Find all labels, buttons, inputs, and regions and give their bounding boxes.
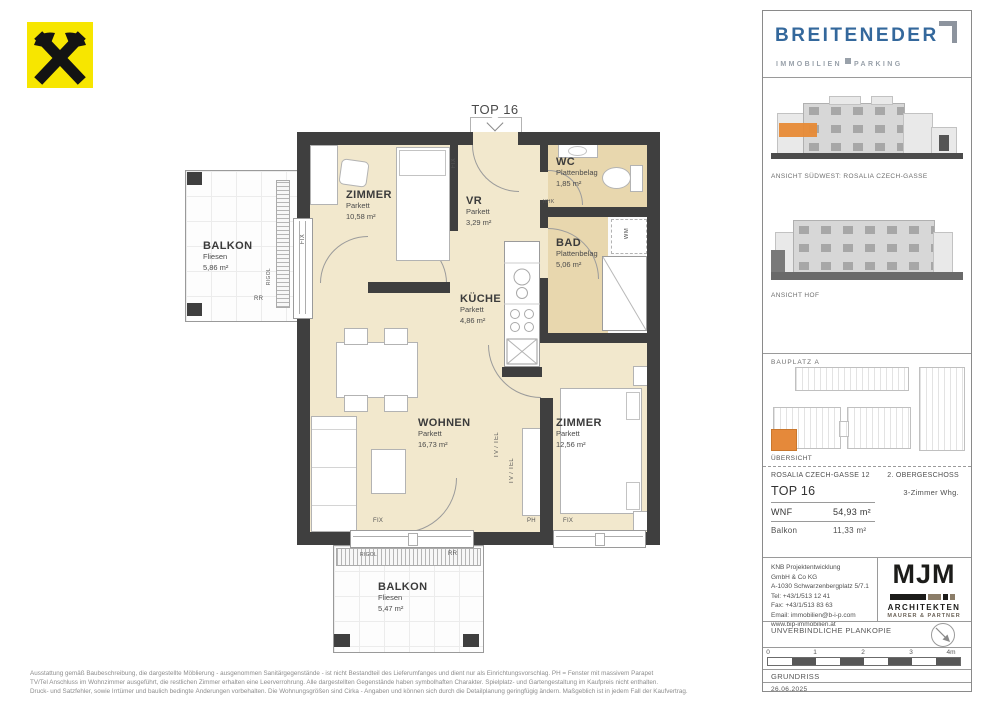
wall (540, 207, 647, 217)
room-name: BALKON (203, 241, 252, 251)
entrance-floor (473, 132, 518, 145)
divider (763, 621, 971, 622)
elevation-southwest: ANSICHT SÜDWEST: ROSALIA CZECH-GASSE (771, 91, 963, 183)
fix-label: FIX (563, 518, 573, 525)
room-name: WOHNEN (418, 418, 471, 428)
wall (540, 398, 553, 532)
square-separator-icon (845, 58, 851, 64)
brand-name: BREITENEDER (775, 25, 939, 47)
underline (771, 502, 875, 503)
room-floor: Parkett (556, 429, 602, 439)
wall (540, 145, 548, 172)
unit-number: TOP 16 (771, 484, 815, 498)
wm-label: WM (624, 228, 631, 239)
ph-label: PH (527, 518, 536, 525)
chair (384, 328, 408, 345)
room-label-wohnen: WOHNEN Parkett 16,73 m² (418, 418, 471, 450)
room-label-kueche: KÜCHE Parkett 4,86 m² (460, 294, 501, 326)
building-wing (903, 113, 933, 155)
chair (338, 158, 369, 188)
annex-arch (939, 135, 949, 151)
architect-sub: MAURER & PARTNER (878, 613, 970, 619)
wall (540, 217, 548, 228)
highlighted-unit (779, 123, 817, 137)
underline (771, 521, 875, 522)
wall (518, 132, 660, 145)
project-floor: 2. OBERGESCHOSS (863, 472, 959, 479)
pillar (463, 634, 479, 647)
basin-bowl (568, 146, 587, 156)
room-name: BAD (556, 238, 598, 248)
ground-line (771, 153, 963, 159)
pillow (399, 150, 446, 176)
scale-tick: 2 (857, 649, 869, 656)
site-building (795, 367, 909, 391)
coffee-table (371, 449, 406, 494)
room-area: 5,86 m² (203, 263, 252, 273)
wall (502, 367, 542, 377)
shower (602, 256, 647, 331)
developer-line: GmbH & Co KG (771, 573, 869, 583)
site-plan-label: BAUPLATZ A (771, 359, 820, 366)
highlighted-unit (771, 429, 797, 451)
roof-structure (829, 96, 861, 105)
toilet-cistern (630, 165, 643, 192)
plan-date: 26.06.2025 (771, 686, 808, 693)
scale-tick: 0 (763, 649, 773, 656)
room-area: 3,29 m² (466, 218, 491, 228)
room-area: 10,58 m² (346, 212, 392, 222)
wall (470, 532, 556, 545)
developer-line: A-1030 Schwarzenbergplatz 5/7.1 (771, 582, 869, 592)
wall (368, 282, 450, 293)
wall (297, 313, 310, 545)
fix-label: FIX (373, 518, 383, 525)
elevation-hof: ANSICHT HOF (771, 206, 963, 302)
wall (297, 532, 353, 545)
site-plan: BAUPLATZ A (767, 355, 967, 455)
nightstand (633, 511, 648, 531)
room-floor: Parkett (346, 201, 392, 211)
room-area: 4,86 m² (460, 316, 501, 326)
desk (310, 145, 338, 205)
drainage-strip (336, 548, 481, 566)
site-building (847, 407, 911, 449)
plan-sheet: TOP 16 RIGOL RR RIGOL RR (0, 0, 1000, 706)
room-label-zimmer2: ZIMMER Parkett 12,56 m² (556, 418, 602, 450)
window (553, 530, 646, 548)
tv-board (522, 428, 541, 516)
ground-line (771, 272, 963, 280)
room-area: 5,06 m² (556, 260, 598, 270)
nightstand (633, 366, 648, 386)
chair (344, 328, 368, 345)
divider (763, 353, 971, 354)
elevation-caption: ANSICHT HOF (771, 292, 819, 299)
project-address: ROSALIA CZECH-GASSE 12 (771, 472, 870, 479)
wnf-label: WNF (771, 507, 792, 517)
unit-type: 3-Zimmer Whg. (859, 488, 959, 497)
rr-label: RR (448, 551, 457, 558)
corner-bracket-icon (939, 21, 957, 43)
roof-structure (871, 96, 893, 105)
rigol-label: RIGOL (360, 552, 377, 559)
sofa (311, 416, 357, 532)
disclaimer-line: Druck- und Satzfehler, sowie Irrtümer un… (30, 688, 725, 697)
pillow (626, 482, 640, 510)
architect-logo: MJM ARCHITEKTEN MAURER & PARTNER (877, 557, 970, 621)
building-wing (933, 232, 953, 274)
brand-sub-right: PARKING (854, 61, 903, 68)
room-floor: Plattenbelag (556, 168, 598, 178)
developer-line: Tel: +43/1/513 12 41 (771, 592, 869, 602)
room-label-balkon-sued: BALKON Fliesen 5,47 m² (378, 582, 427, 614)
drawing-type: GRUNDRISS (771, 672, 820, 681)
divider (763, 669, 971, 670)
building-facade (793, 220, 935, 274)
scale-tick: 1 (809, 649, 821, 656)
architect-name: ARCHITEKTEN (878, 603, 970, 612)
room-name: WC (556, 157, 598, 167)
plan-copy-note: UNVERBINDLICHE PLANKOPIE (771, 626, 891, 635)
architect-bar-icon (890, 594, 955, 600)
rr-label: RR (254, 296, 263, 303)
site-connector (839, 421, 849, 437)
divider (763, 682, 971, 683)
room-floor: Fliesen (203, 252, 252, 262)
divider (763, 466, 971, 467)
drainage-strip (276, 180, 290, 308)
room-label-zimmer1: ZIMMER Parkett 10,58 m² (346, 190, 392, 222)
brand-logo: BREITENEDER IMMOBILIENPARKING (763, 11, 969, 77)
room-label-balkon-west: BALKON Fliesen 5,86 m² (203, 241, 252, 273)
room-label-vr: VR Parkett 3,29 m² (466, 196, 491, 228)
wall (297, 132, 473, 145)
sidebar: BREITENEDER IMMOBILIENPARKING ANSICHT SÜ… (762, 10, 972, 692)
room-floor: Parkett (418, 429, 471, 439)
pillow (626, 392, 640, 420)
room-name: ZIMMER (346, 190, 392, 200)
room-area: 1,85 m² (556, 179, 598, 189)
room-floor: Plattenbelag (556, 249, 598, 259)
fix-label: FIX (300, 234, 307, 244)
window (350, 530, 474, 548)
dining-table (336, 342, 418, 398)
room-area: 16,73 m² (418, 440, 471, 450)
room-floor: Parkett (460, 305, 501, 315)
room-floor: Fliesen (378, 593, 427, 603)
floor-plan: TOP 16 RIGOL RR RIGOL RR (0, 0, 760, 706)
wall (540, 278, 548, 333)
toilet (602, 167, 631, 189)
room-area: 12,56 m² (556, 440, 602, 450)
brand-sub-left: IMMOBILIEN (776, 61, 842, 68)
room-area: 5,47 m² (378, 604, 427, 614)
elevation-caption: ANSICHT SÜDWEST: ROSALIA CZECH-GASSE (771, 173, 928, 180)
wall (540, 333, 660, 343)
site-plan-bottom-label: ÜBERSICHT (771, 455, 812, 462)
scale-bar (767, 657, 961, 666)
scale-tick: 3 (905, 649, 917, 656)
building-facade (803, 103, 905, 155)
side-structure (771, 250, 785, 272)
north-arrow-icon (931, 623, 955, 647)
wnf-value: 54,93 m² (833, 507, 871, 517)
room-name: BALKON (378, 582, 427, 592)
room-name: ZIMMER (556, 418, 602, 428)
developer-line: KNB Projektentwicklung (771, 563, 869, 573)
disclaimer: Ausstattung gemäß Baubeschreibung, die d… (30, 670, 725, 696)
developer-line: Email: immobilien@b-i-p.com (771, 611, 869, 621)
disclaimer-line: TV/Tel Anschluss im Wohnzimmer ausgeführ… (30, 679, 725, 688)
pillar (334, 634, 350, 647)
tv-tel-label: TV / TEL (509, 458, 516, 484)
room-label-wc: WC Plattenbelag 1,85 m² (556, 157, 598, 189)
scale-tick: 4m (941, 649, 961, 656)
room-floor: Parkett (466, 207, 491, 217)
room-name: KÜCHE (460, 294, 501, 304)
developer-block: KNB Projektentwicklung GmbH & Co KG A-10… (763, 557, 877, 621)
tv-tel-label: TV / TEL (494, 432, 501, 458)
kitchen-unit (504, 241, 540, 367)
balkon-value: 11,33 m² (833, 526, 866, 535)
architect-monogram: MJM (878, 559, 970, 590)
site-building (919, 367, 965, 451)
rigol-label: RIGOL (266, 268, 273, 285)
pillar (187, 172, 202, 185)
room-name: VR (466, 196, 491, 206)
divider (763, 77, 971, 78)
wall (297, 145, 310, 222)
room-label-bad: BAD Plattenbelag 5,06 m² (556, 238, 598, 270)
fix-label: FIX (451, 158, 458, 168)
balkon-label: Balkon (771, 526, 797, 535)
hhk-label: HHK (543, 199, 554, 206)
chair (344, 395, 368, 412)
developer-line: Fax: +43/1/513 83 63 (771, 601, 869, 611)
chair (384, 395, 408, 412)
pillar (187, 303, 202, 316)
disclaimer-line: Ausstattung gemäß Baubeschreibung, die d… (30, 670, 725, 679)
